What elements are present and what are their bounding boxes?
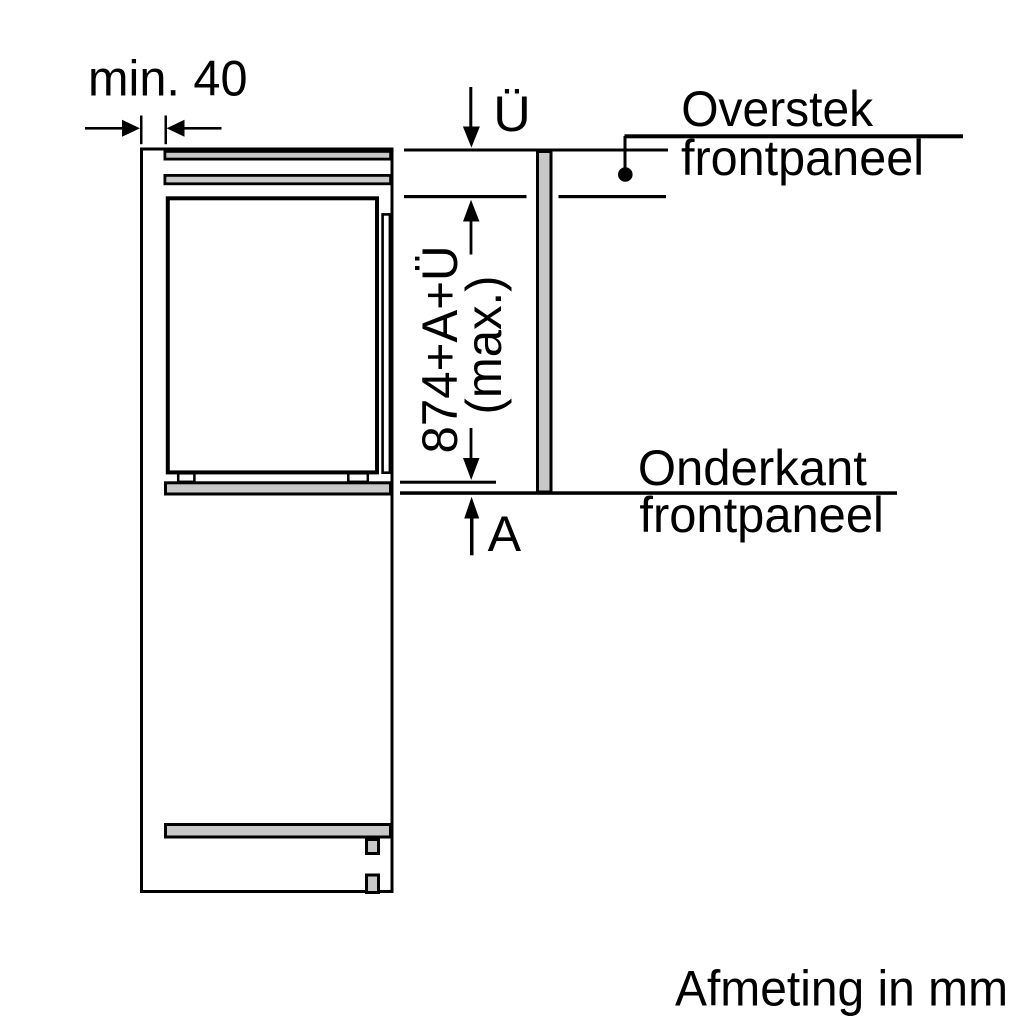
svg-text:Overstek: Overstek [681, 81, 873, 137]
svg-text:frontpaneel: frontpaneel [681, 130, 924, 186]
svg-text:A: A [488, 506, 522, 562]
svg-text:Ü: Ü [493, 86, 531, 142]
svg-text:frontpaneel: frontpaneel [639, 487, 884, 543]
svg-text:(max.): (max.) [456, 276, 512, 415]
svg-text:min. 40: min. 40 [88, 51, 248, 107]
svg-text:Afmeting in mm: Afmeting in mm [675, 961, 1008, 1017]
